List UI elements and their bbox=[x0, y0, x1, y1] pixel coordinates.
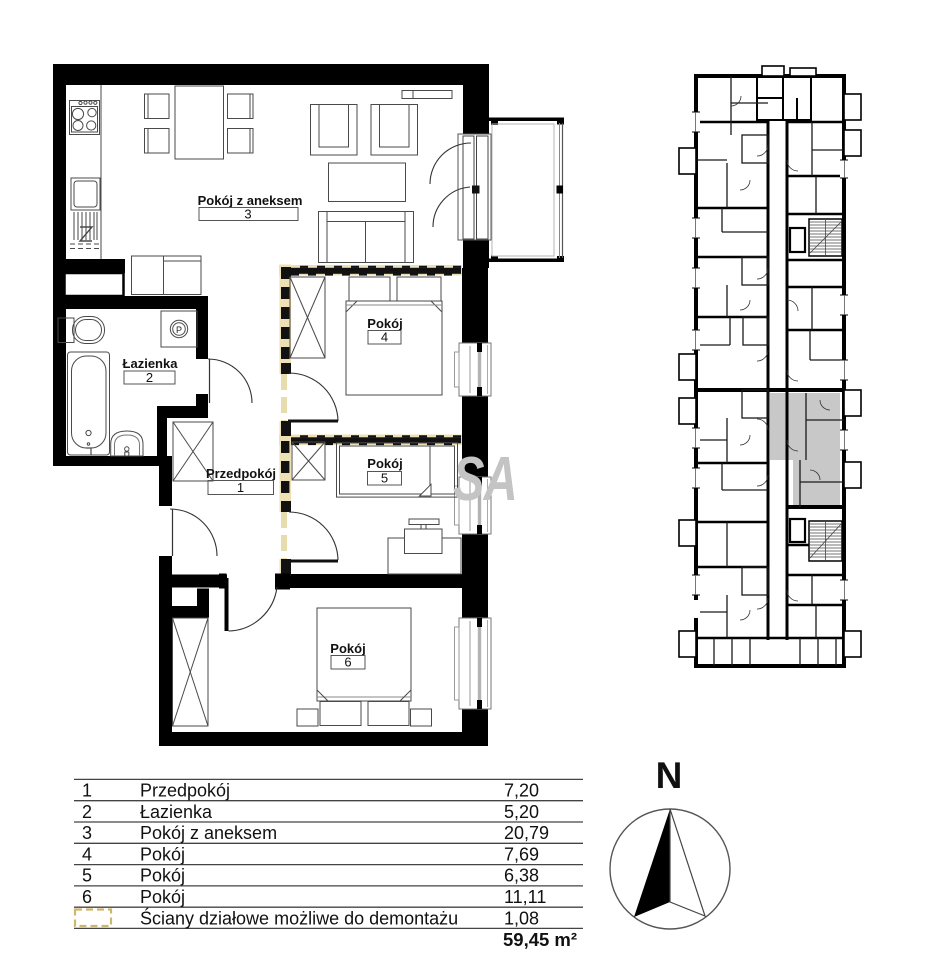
svg-text:4: 4 bbox=[381, 330, 388, 345]
svg-text:Łazienka: Łazienka bbox=[140, 802, 213, 822]
svg-text:59,45 m²: 59,45 m² bbox=[503, 929, 577, 950]
svg-text:1,08: 1,08 bbox=[504, 908, 539, 928]
svg-text:3: 3 bbox=[244, 207, 251, 222]
svg-text:4: 4 bbox=[82, 844, 92, 864]
svg-text:2: 2 bbox=[146, 370, 153, 385]
svg-text:SA: SA bbox=[453, 444, 517, 514]
svg-text:1: 1 bbox=[82, 781, 92, 801]
svg-text:Pokój: Pokój bbox=[140, 887, 185, 907]
svg-text:Pokój: Pokój bbox=[367, 456, 402, 471]
svg-text:6: 6 bbox=[344, 655, 351, 670]
svg-text:7,69: 7,69 bbox=[504, 844, 539, 864]
svg-text:2: 2 bbox=[82, 802, 92, 822]
svg-text:7,20: 7,20 bbox=[504, 781, 539, 801]
svg-text:5,20: 5,20 bbox=[504, 802, 539, 822]
svg-text:Pokój: Pokój bbox=[140, 844, 185, 864]
svg-text:20,79: 20,79 bbox=[504, 823, 549, 843]
svg-text:Pokój z aneksem: Pokój z aneksem bbox=[140, 823, 277, 843]
svg-text:6: 6 bbox=[82, 887, 92, 907]
svg-text:11,11: 11,11 bbox=[504, 887, 546, 907]
svg-text:P: P bbox=[176, 325, 182, 335]
svg-text:Łazienka: Łazienka bbox=[123, 356, 179, 371]
svg-text:5: 5 bbox=[381, 471, 388, 486]
svg-text:3: 3 bbox=[82, 823, 92, 843]
svg-text:Pokój: Pokój bbox=[140, 866, 185, 886]
svg-text:Przedpokój: Przedpokój bbox=[140, 781, 230, 801]
svg-text:5: 5 bbox=[82, 866, 92, 886]
svg-text:Ściany działowe możliwe do dem: Ściany działowe możliwe do demontażu bbox=[140, 907, 458, 928]
svg-text:N: N bbox=[656, 755, 683, 796]
svg-text:Przedpokój: Przedpokój bbox=[206, 466, 276, 481]
svg-text:6,38: 6,38 bbox=[504, 866, 539, 886]
svg-text:1: 1 bbox=[237, 480, 244, 495]
